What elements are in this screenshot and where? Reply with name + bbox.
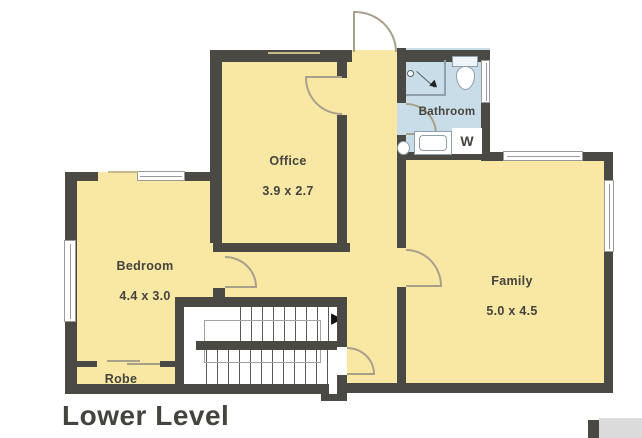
page-title: Lower Level [62, 400, 229, 432]
stair-center-rail [196, 341, 337, 350]
shower-screen-icon [406, 94, 446, 96]
robe-label: Robe [81, 372, 161, 387]
family-dims: 5.0 x 4.5 [462, 304, 562, 319]
wall-segment [213, 243, 350, 252]
bedroom-top-window [137, 171, 185, 181]
wall-segment [397, 287, 406, 393]
family-name: Family [462, 274, 562, 289]
office-dims: 3.9 x 2.7 [238, 184, 338, 199]
bedroom-name: Bedroom [95, 259, 195, 274]
bathroom-right-window [481, 60, 490, 103]
entry-door-arc [355, 11, 397, 52]
bedroom-label: Bedroom 4.4 x 3.0 [95, 244, 195, 319]
wall-segment [175, 297, 347, 307]
office-name: Office [238, 154, 338, 169]
family-right-window [604, 180, 614, 252]
wall-segment [185, 172, 222, 181]
wall-segment [337, 115, 347, 245]
wall-segment [604, 152, 613, 180]
adjacent-structure-wall [588, 420, 599, 438]
robe-sliding-door [107, 360, 140, 362]
family-top-window [503, 151, 583, 161]
wall-segment [65, 361, 97, 367]
robe-sliding-door [127, 363, 160, 365]
office-label: Office 3.9 x 2.7 [238, 139, 338, 214]
adjacent-structure [599, 418, 642, 438]
bathroom-label: Bathroom [397, 105, 497, 120]
wc-icon [397, 141, 410, 155]
wall-segment [397, 152, 406, 248]
washing-machine-box: W [452, 128, 482, 154]
shower-screen-icon [444, 60, 446, 96]
floor-plan: ▶ [0, 0, 642, 438]
wall-segment [160, 361, 184, 367]
wall-segment [347, 383, 613, 393]
bedroom-left-window [64, 240, 76, 322]
wall-segment [397, 48, 406, 103]
family-label: Family 5.0 x 4.5 [462, 259, 562, 334]
bedroom-dims: 4.4 x 3.0 [95, 289, 195, 304]
washing-machine-label: W [460, 133, 473, 149]
wall-segment [604, 252, 613, 393]
wall-segment [321, 394, 347, 401]
shower-head-icon [407, 70, 414, 77]
vanity-basin-icon [419, 135, 447, 151]
wall-segment [337, 375, 347, 394]
bedroom-wall-opening [108, 171, 138, 173]
wall-segment [337, 297, 347, 347]
office-wall-opening [268, 52, 320, 54]
wall-segment [481, 152, 503, 161]
stair-exit-gap [329, 384, 337, 394]
wall-segment [210, 50, 222, 243]
